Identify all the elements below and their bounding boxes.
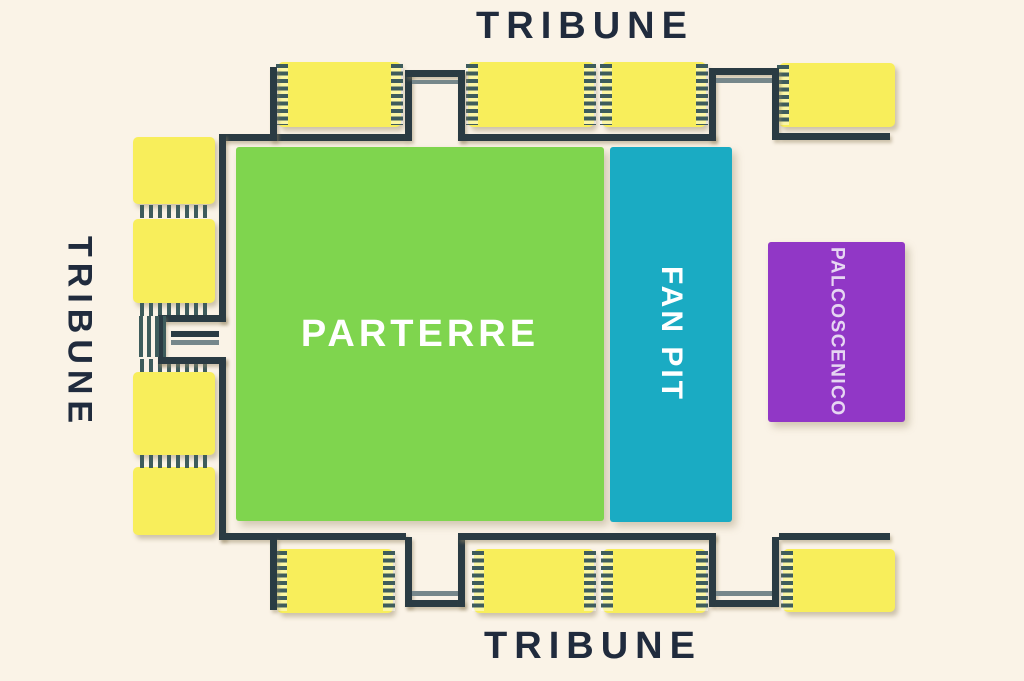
corridor-bottom-outer-line xyxy=(716,600,772,607)
stage-label: PALCOSCENICO xyxy=(826,247,848,417)
label-tribune-left: TRIBUNE xyxy=(50,233,108,433)
wall-top-right-inner xyxy=(779,133,890,140)
wall-bottom-gate-left xyxy=(405,537,412,607)
tribune-section-left-2[interactable] xyxy=(133,219,215,303)
tribune-section-top-1[interactable] xyxy=(278,62,401,127)
zone-parterre[interactable]: PARTERRE xyxy=(236,147,604,521)
wall-left-lower xyxy=(219,357,226,540)
label-tribune-bottom: TRIBUNE xyxy=(478,625,708,668)
wall-bottom-inner-left xyxy=(219,533,406,540)
wall-bottom-gate-right xyxy=(458,537,465,607)
wall-top-endcap xyxy=(270,67,277,141)
wall-top-inner-left xyxy=(219,134,406,141)
wall-top-corridor-right xyxy=(772,68,779,140)
tribune-section-bottom-3[interactable] xyxy=(603,549,706,613)
parterre-label: PARTERRE xyxy=(301,313,539,356)
tribune-section-left-4[interactable] xyxy=(133,467,215,535)
tribune-section-left-3[interactable] xyxy=(133,372,215,455)
tribune-section-top-3[interactable] xyxy=(602,62,706,127)
entrance-notch-top xyxy=(158,315,226,322)
tribune-section-top-right[interactable] xyxy=(779,63,895,127)
tribune-section-bottom-right[interactable] xyxy=(783,549,895,612)
wall-bottom-corridor-left xyxy=(709,533,716,607)
wall-bottom-right-inner xyxy=(779,533,890,540)
wall-bottom-gate-sill xyxy=(405,600,465,607)
venue-seating-map: TRIBUNE TRIBUNE TRIBUNE PARTERRE FAN PIT… xyxy=(0,0,1024,681)
wall-top-gate-lintel xyxy=(405,70,465,77)
wall-bottom-inner-right xyxy=(458,533,716,540)
wall-top-corridor-left xyxy=(709,68,716,141)
stairs-hatch-left-4 xyxy=(140,455,212,468)
zone-fan-pit[interactable]: FAN PIT xyxy=(610,147,732,522)
label-tribune-top: TRIBUNE xyxy=(470,5,700,48)
entrance-gate-gray-line xyxy=(171,340,219,345)
tribune-section-left-1[interactable] xyxy=(133,137,215,204)
wall-left-upper xyxy=(219,134,226,322)
corridor-bottom-inner-line xyxy=(716,591,772,596)
wall-bottom-corridor-right xyxy=(772,537,779,607)
tribune-section-top-2[interactable] xyxy=(468,62,594,127)
tribune-section-bottom-2[interactable] xyxy=(474,549,594,613)
fan-pit-label: FAN PIT xyxy=(654,266,688,402)
entrance-notch-bottom xyxy=(158,357,226,364)
wall-top-gate-right xyxy=(458,70,465,141)
corridor-top-outer-line xyxy=(716,68,772,75)
wall-top-inner-right xyxy=(458,134,716,141)
tribune-section-bottom-1[interactable] xyxy=(277,549,393,613)
wall-top-gate-left xyxy=(405,70,412,141)
stairs-hatch-left-1 xyxy=(140,205,212,218)
entrance-stairs xyxy=(139,316,166,357)
corridor-top-inner-line xyxy=(716,78,772,83)
walkway-line-bottom-gate xyxy=(412,591,458,596)
zone-stage-palcoscenico[interactable]: PALCOSCENICO xyxy=(768,242,905,422)
walkway-line-top-gate xyxy=(412,80,458,84)
entrance-gate-dark-line xyxy=(171,331,219,337)
wall-bottom-endcap xyxy=(270,537,277,610)
